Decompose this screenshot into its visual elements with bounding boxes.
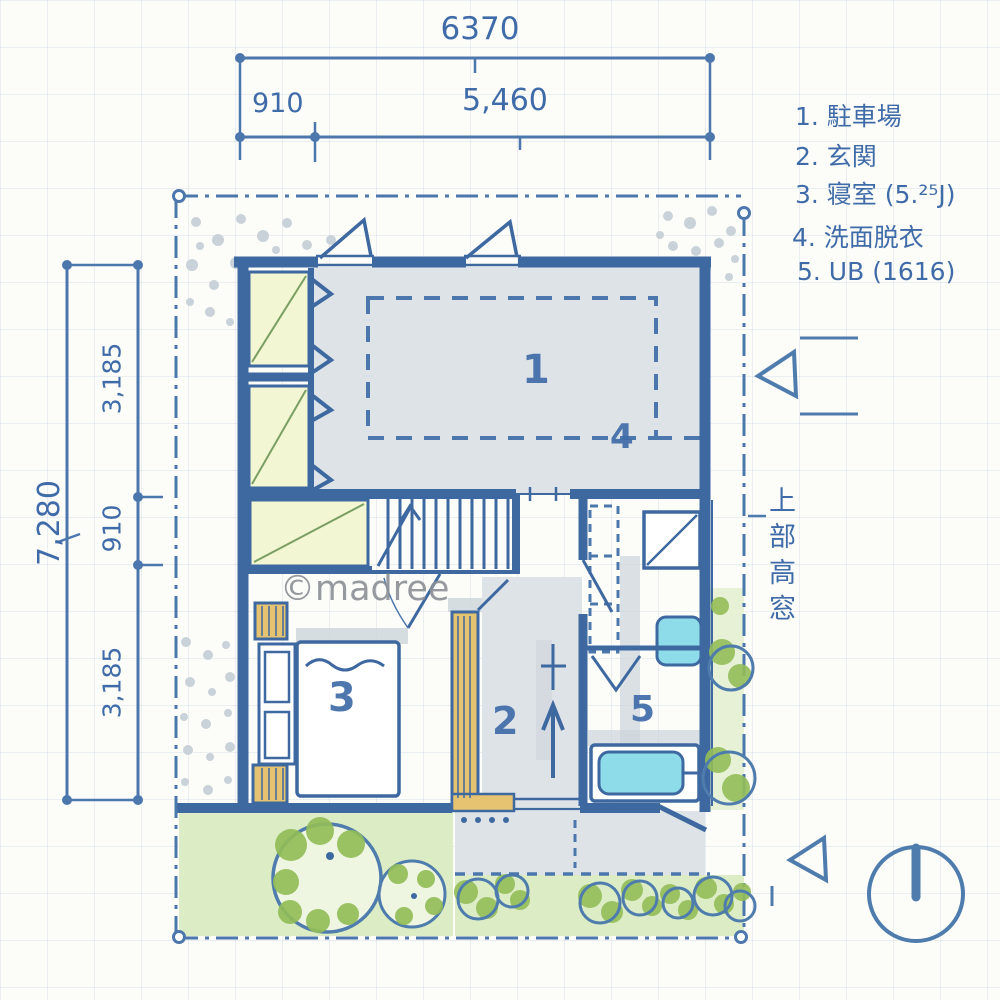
watermark: ©madree [280, 572, 449, 607]
legend-item-washroom: 4. 洗面脱衣 [792, 225, 924, 250]
legend-item-bedroom: 3. 寝室 (5.²⁵J) [795, 182, 956, 207]
room-label-entrance: 2 [492, 702, 518, 740]
entrance-floor [482, 577, 582, 807]
wash-basin [657, 617, 701, 665]
dimension-left-total: 7,280 [35, 473, 65, 573]
genkan-step [452, 794, 514, 811]
room-label-bathroom: 5 [630, 692, 655, 728]
dimension-top-left: 910 [252, 90, 304, 117]
bathtub [599, 752, 683, 794]
room-label-parking: 1 [522, 350, 550, 390]
stairs [372, 494, 516, 574]
dimension-left-lower: 3,185 [100, 633, 125, 733]
north-arrow [869, 847, 963, 941]
room-label-bedroom: 3 [328, 678, 356, 718]
window-flag [466, 222, 517, 258]
floor-plan-page: 6370 910 5,460 7,280 3,185 910 3,185 1. … [0, 0, 1000, 1000]
legend-item-parking: 1. 駐車場 [795, 104, 902, 129]
dimension-top-right: 5,460 [462, 86, 548, 116]
stairs-up-arrow [400, 506, 420, 522]
room-label-washroom: 4 [610, 420, 634, 454]
stairs-up-line [378, 508, 410, 566]
dimension-left-middle: 910 [100, 479, 125, 579]
wood-partition [452, 612, 478, 802]
high-window-note: 上部高窓 [766, 486, 793, 630]
parking-floor [313, 267, 703, 495]
legend-item-entrance: 2. 玄関 [795, 144, 877, 169]
dimension-left-upper: 3,185 [100, 329, 125, 429]
dimension-top-total: 6370 [430, 14, 530, 45]
legend-item-bathroom: 5. UB (1616) [797, 259, 955, 284]
